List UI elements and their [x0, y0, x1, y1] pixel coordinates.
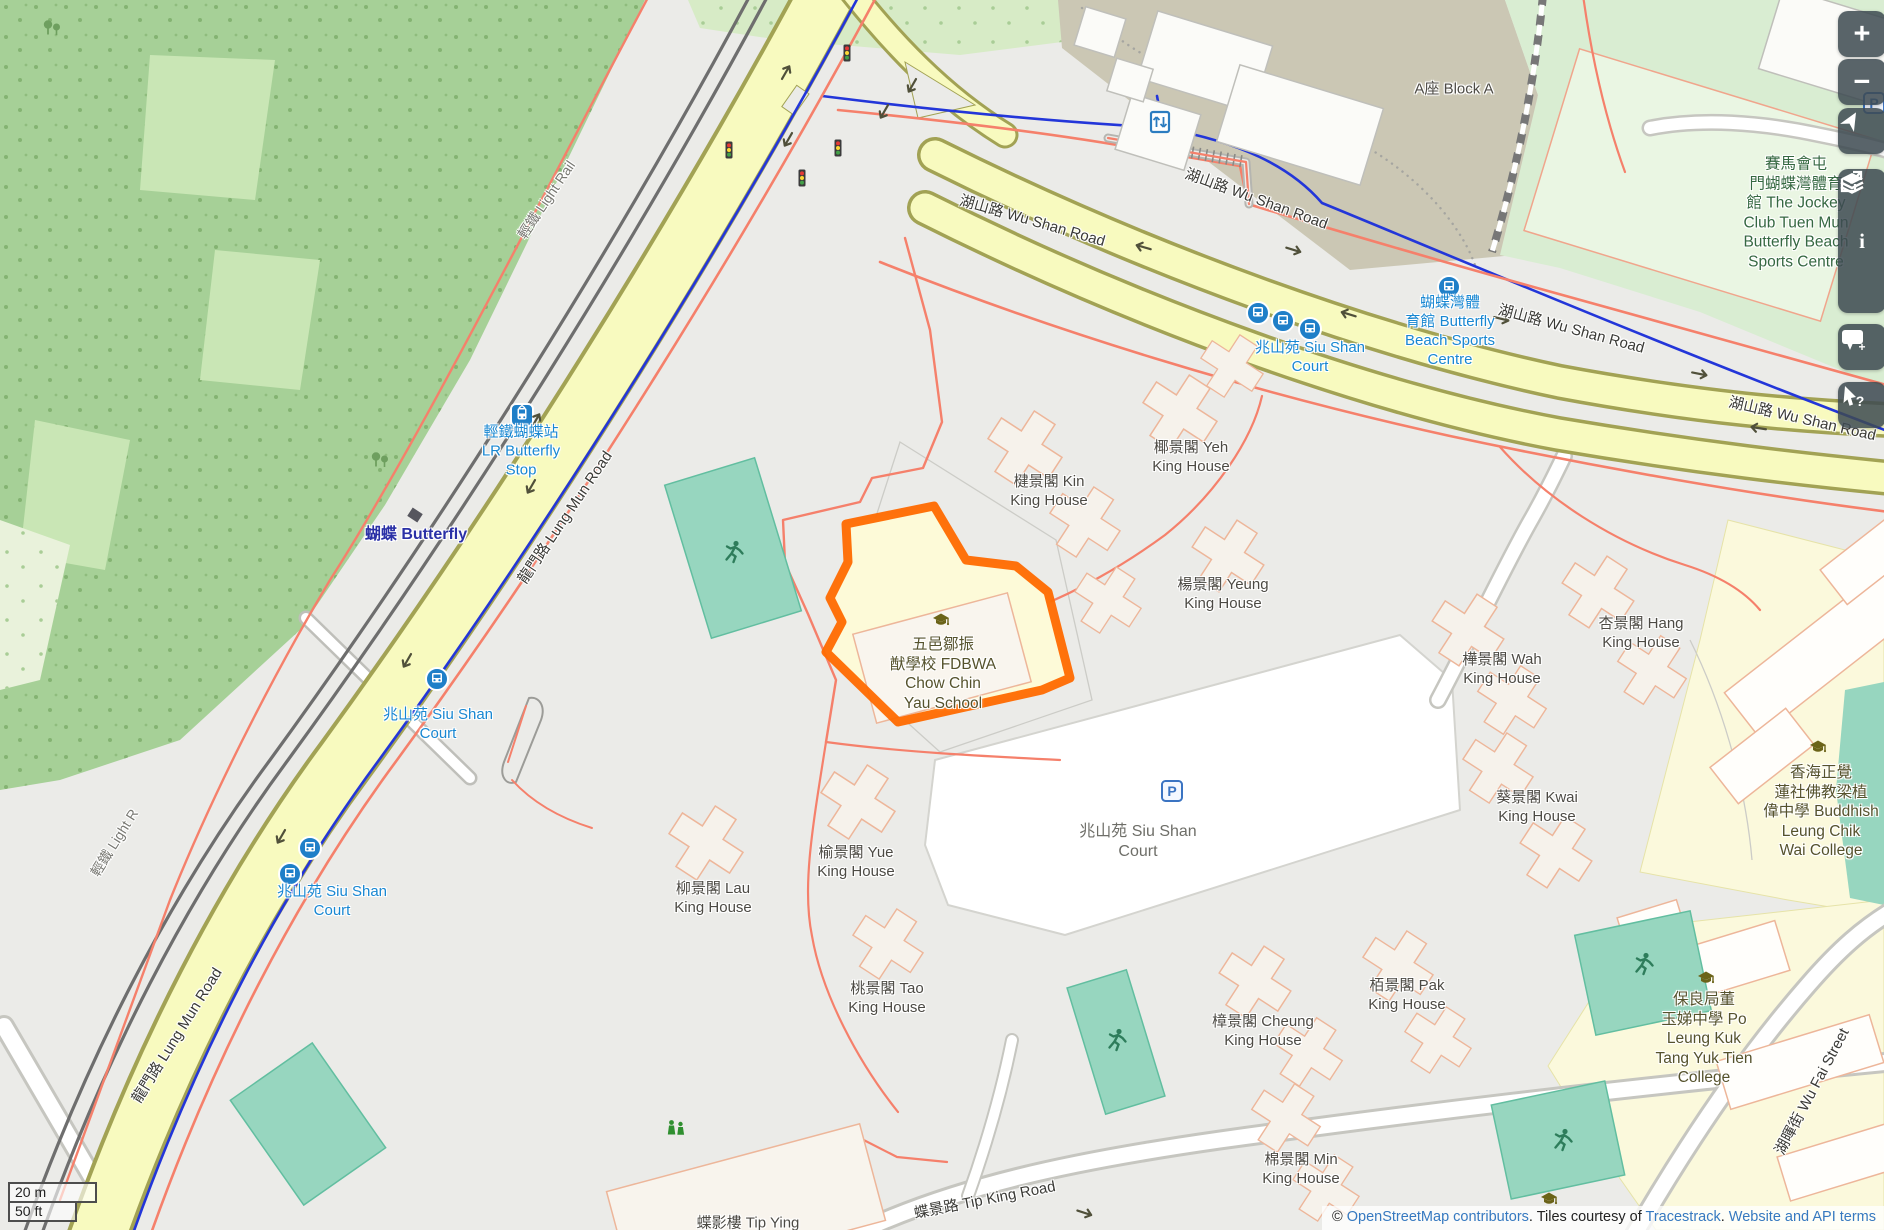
attribution-link[interactable]: Tracestrack [1646, 1209, 1721, 1225]
bus-stop-icon [426, 668, 448, 690]
traffic-signal-icon [799, 170, 806, 187]
attribution-text: . [1721, 1209, 1729, 1225]
bus-stop-icon [1272, 310, 1294, 332]
bus-stop-icon [279, 863, 301, 885]
map-canvas[interactable]: P [0, 0, 1884, 1230]
attribution-link[interactable]: Website and API terms [1729, 1209, 1876, 1225]
tram-stop-icon [511, 404, 533, 426]
plus-icon: + [1854, 20, 1871, 49]
add-note-button[interactable]: + [1838, 324, 1884, 370]
map-viewport[interactable]: P [0, 0, 1884, 1230]
zoom-in-button[interactable]: + [1838, 11, 1884, 57]
svg-text:+: + [1858, 340, 1865, 354]
query-cursor-icon: ? [1838, 382, 1868, 412]
svg-text:?: ? [1856, 393, 1865, 409]
zoom-out-button[interactable]: − [1838, 59, 1884, 105]
attribution-text: © [1332, 1209, 1347, 1225]
comment-plus-icon: + [1838, 324, 1868, 354]
minus-icon: − [1854, 68, 1871, 97]
traffic-signal-icon [835, 140, 842, 157]
scale-imperial: 50 ft [8, 1201, 77, 1222]
attribution-link[interactable]: OpenStreetMap contributors [1347, 1209, 1529, 1225]
attribution-bar: © OpenStreetMap contributors. Tiles cour… [1322, 1206, 1884, 1230]
share-icon[interactable] [1838, 169, 1864, 195]
traffic-signal-icon [844, 45, 851, 62]
parking-icon [1162, 781, 1182, 801]
query-features-button[interactable]: ? [1838, 382, 1884, 428]
bus-stop-icon [1438, 276, 1460, 298]
map-tools-group: i [1838, 169, 1884, 313]
bus-stop-icon [299, 837, 321, 859]
scale-bar: 20 m 50 ft [8, 1182, 97, 1222]
traffic-signal-icon [726, 142, 733, 159]
bus-stop-icon [1299, 318, 1321, 340]
locate-me-button[interactable] [1838, 108, 1884, 154]
elevator-icon [1151, 112, 1169, 132]
map-key-info-icon[interactable]: i [1859, 229, 1865, 254]
scale-metric: 20 m [8, 1182, 97, 1203]
attribution-text: . Tiles courtesy of [1529, 1209, 1646, 1225]
bus-stop-icon [1247, 302, 1269, 324]
navigation-arrow-icon [1838, 108, 1864, 134]
